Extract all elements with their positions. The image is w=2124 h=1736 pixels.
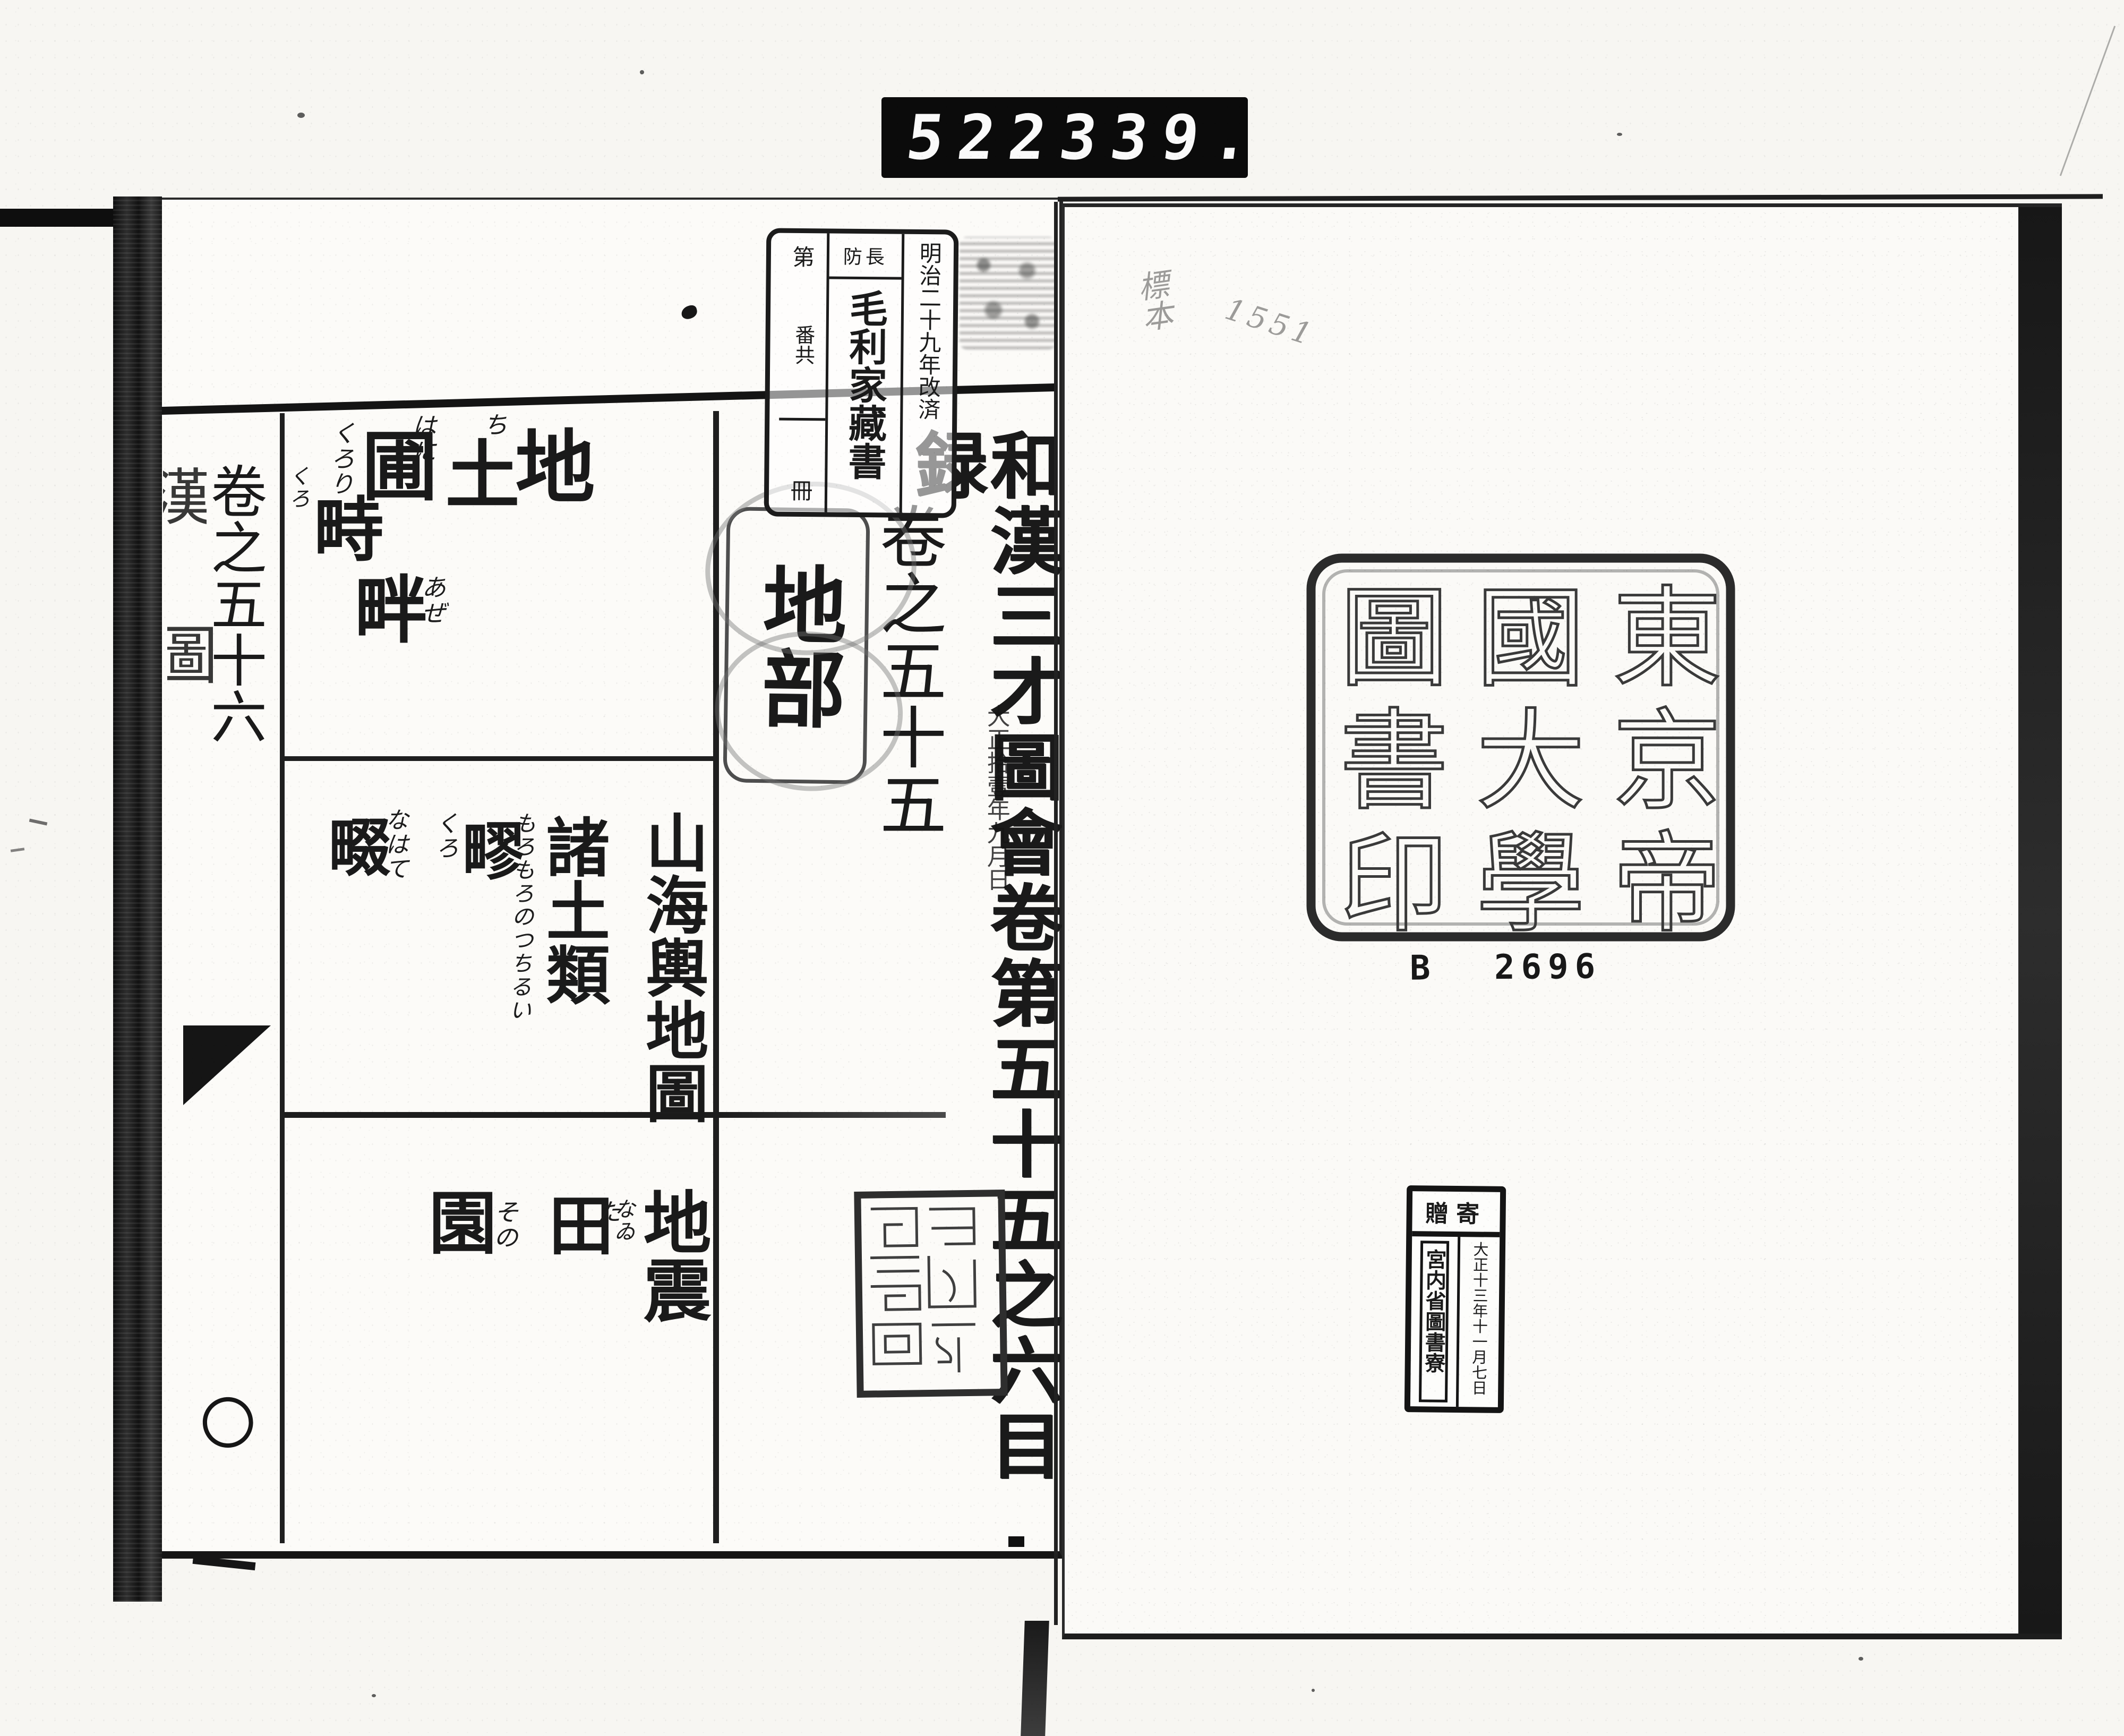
entry-tsuchi-kanji: 土 [437, 436, 515, 510]
ownership-stamp-title-column: 防長 毛利家藏書 [827, 233, 902, 512]
ink-blob [680, 304, 698, 321]
entry-sono-kanji: 園 [421, 1187, 492, 1255]
right-page-outer-top-line [1058, 194, 2103, 201]
blurred-seal [960, 237, 1056, 349]
entry-hatake-kanji: 圃 [353, 427, 432, 502]
spine-band [113, 196, 162, 1602]
library-seal-col-middle: 國大學 [1458, 580, 1584, 945]
scan-scratch [2060, 26, 2116, 176]
ownership-stamp-title: 毛利家藏書 [844, 289, 885, 481]
margin-speck [372, 1694, 376, 1697]
ownership-stamp-dai: 第 [792, 240, 815, 272]
entry-kuro-kanji: 疁 [455, 818, 520, 881]
page-edge-tab [0, 209, 116, 227]
gutter-shadow-below [1021, 1621, 1049, 1736]
collector-seal [854, 1190, 1007, 1398]
collector-seal-pattern [861, 1197, 987, 1377]
margin-speck [640, 70, 644, 74]
margin-dash [11, 848, 24, 852]
gutter-tab [1008, 1536, 1024, 1547]
entry-kuro-kana: くろ [433, 811, 457, 860]
ownership-stamp-form-column: 第 番共 冊 [778, 233, 830, 512]
scanned-book-spread: 522 339. 漢 圖 〇 卷之五十六 地 ち 土 はに 圃 くろり 畤 くろ… [0, 0, 2124, 1736]
right-page-edge-band [2018, 207, 2062, 1634]
ownership-stamp: 明治二十九年改済 防長 毛利家藏書 第 番共 冊 [764, 228, 959, 518]
library-seal-col-right: 東京帝 [1594, 580, 1720, 945]
frame-counter-display: 522 339. [881, 97, 1248, 178]
entry-jishin-kanji: 地震 [636, 1187, 706, 1368]
entry-chi-kana: ち [481, 412, 506, 438]
entry-toki-kana: くろ [286, 465, 309, 510]
donation-stamp-header: 贈寄 [1412, 1191, 1500, 1237]
gutter-line [1054, 202, 1058, 1625]
margin-dash [29, 819, 48, 826]
entry-toki-kanji: 畤 [306, 493, 379, 563]
ownership-stamp-bankyo: 番共 [792, 324, 813, 365]
entry-nawate-kanji: 畷 [321, 815, 387, 877]
donation-stamp-date: 大正十三年十一月七日 [1470, 1241, 1488, 1395]
left-page: 漢 圖 〇 卷之五十六 地 ち 土 はに 圃 くろり 畤 くろ 畔 あぜ 山海輿… [114, 198, 1063, 1559]
entry-nawate-kana: なはて [382, 808, 407, 967]
donation-stamp-organization: 宮内省圖書寮 [1423, 1248, 1445, 1392]
frame-counter-right: 339. [1055, 102, 1267, 174]
library-seal-col-left: 圖書印 [1321, 580, 1448, 945]
spine-fragment-triangle [183, 1025, 271, 1105]
donation-stamp: 贈寄 大正十三年十一月七日 宮内省圖書寮 [1404, 1185, 1506, 1413]
row-divider-1 [285, 756, 713, 761]
margin-speck [1312, 1689, 1315, 1692]
library-seal: 東京帝 國大學 圖書印 [1303, 550, 1739, 947]
handwriting-number: 1551 [1221, 292, 1320, 354]
entry-shodorui-kanji: 諸土類 [539, 815, 605, 1027]
spine-page-ring: 〇 [194, 1395, 252, 1450]
margin-speck [297, 113, 305, 118]
ownership-stamp-divider [779, 417, 825, 421]
ownership-stamp-header: 防長 [829, 233, 902, 279]
entry-sankai-yochizu: 山海輿地圖 [639, 810, 704, 1140]
handwriting-label: 標本 [1133, 268, 1178, 367]
entry-aze-kana: あぜ [419, 575, 444, 626]
row-divider-2 [285, 1112, 946, 1118]
received-date-stamp: 大正拾壹年九月日 [984, 704, 1008, 1055]
spine-page-dash [193, 1556, 256, 1570]
section-box: 地部 [723, 507, 870, 784]
accession-number: B 2696 [1410, 947, 1602, 988]
volume-56-label: 卷之五十六 [193, 463, 263, 802]
ownership-stamp-date: 明治二十九年改済 [915, 242, 941, 497]
entry-aze-kanji: 畔 [347, 571, 423, 645]
right-page: 標本 1551 東京帝 國大學 圖書印 B 2696 贈寄 大正十三年十一月七日 [1062, 203, 2062, 1639]
entry-ta-kana: た [594, 1199, 620, 1225]
ownership-stamp-satsu: 冊 [790, 473, 813, 506]
margin-speck [1858, 1657, 1863, 1661]
vertical-rule-left [280, 413, 285, 1543]
margin-speck [1617, 133, 1622, 136]
frame-counter-left: 522 [903, 102, 1064, 174]
entry-sono-kana: その [488, 1199, 518, 1322]
ownership-stamp-date-column: 明治二十九年改済 [900, 234, 954, 514]
